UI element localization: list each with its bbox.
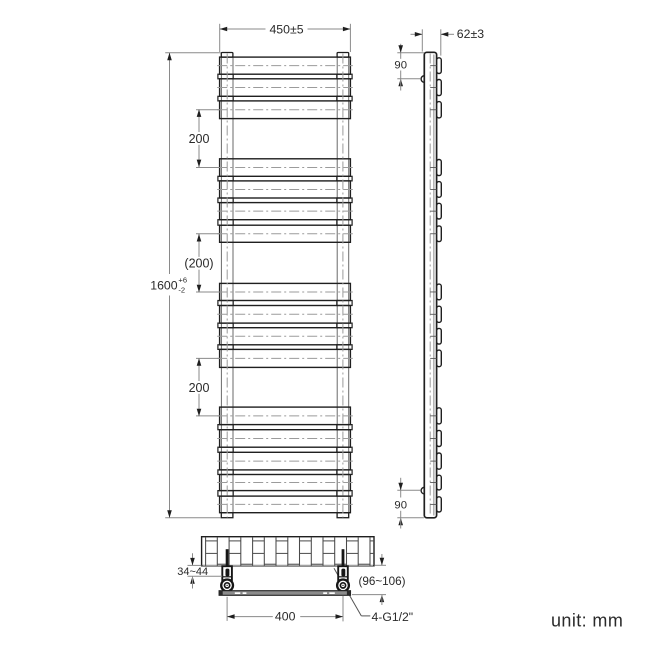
- svg-text:450±5: 450±5: [269, 22, 303, 36]
- svg-text:(200): (200): [184, 256, 213, 270]
- svg-text:-2: -2: [178, 286, 185, 295]
- svg-text:unit: mm: unit: mm: [551, 611, 623, 631]
- svg-text:62±3: 62±3: [457, 27, 484, 41]
- svg-text:(96~106): (96~106): [358, 575, 405, 588]
- svg-text:200: 200: [189, 132, 210, 146]
- svg-text:90: 90: [394, 499, 407, 511]
- svg-text:34~44: 34~44: [177, 566, 208, 578]
- svg-text:400: 400: [275, 610, 296, 624]
- svg-text:4-G1/2": 4-G1/2": [372, 610, 414, 624]
- svg-text:200: 200: [189, 381, 210, 395]
- svg-text:1600: 1600: [150, 279, 178, 293]
- svg-text:90: 90: [394, 59, 407, 71]
- svg-text:+6: +6: [178, 276, 187, 285]
